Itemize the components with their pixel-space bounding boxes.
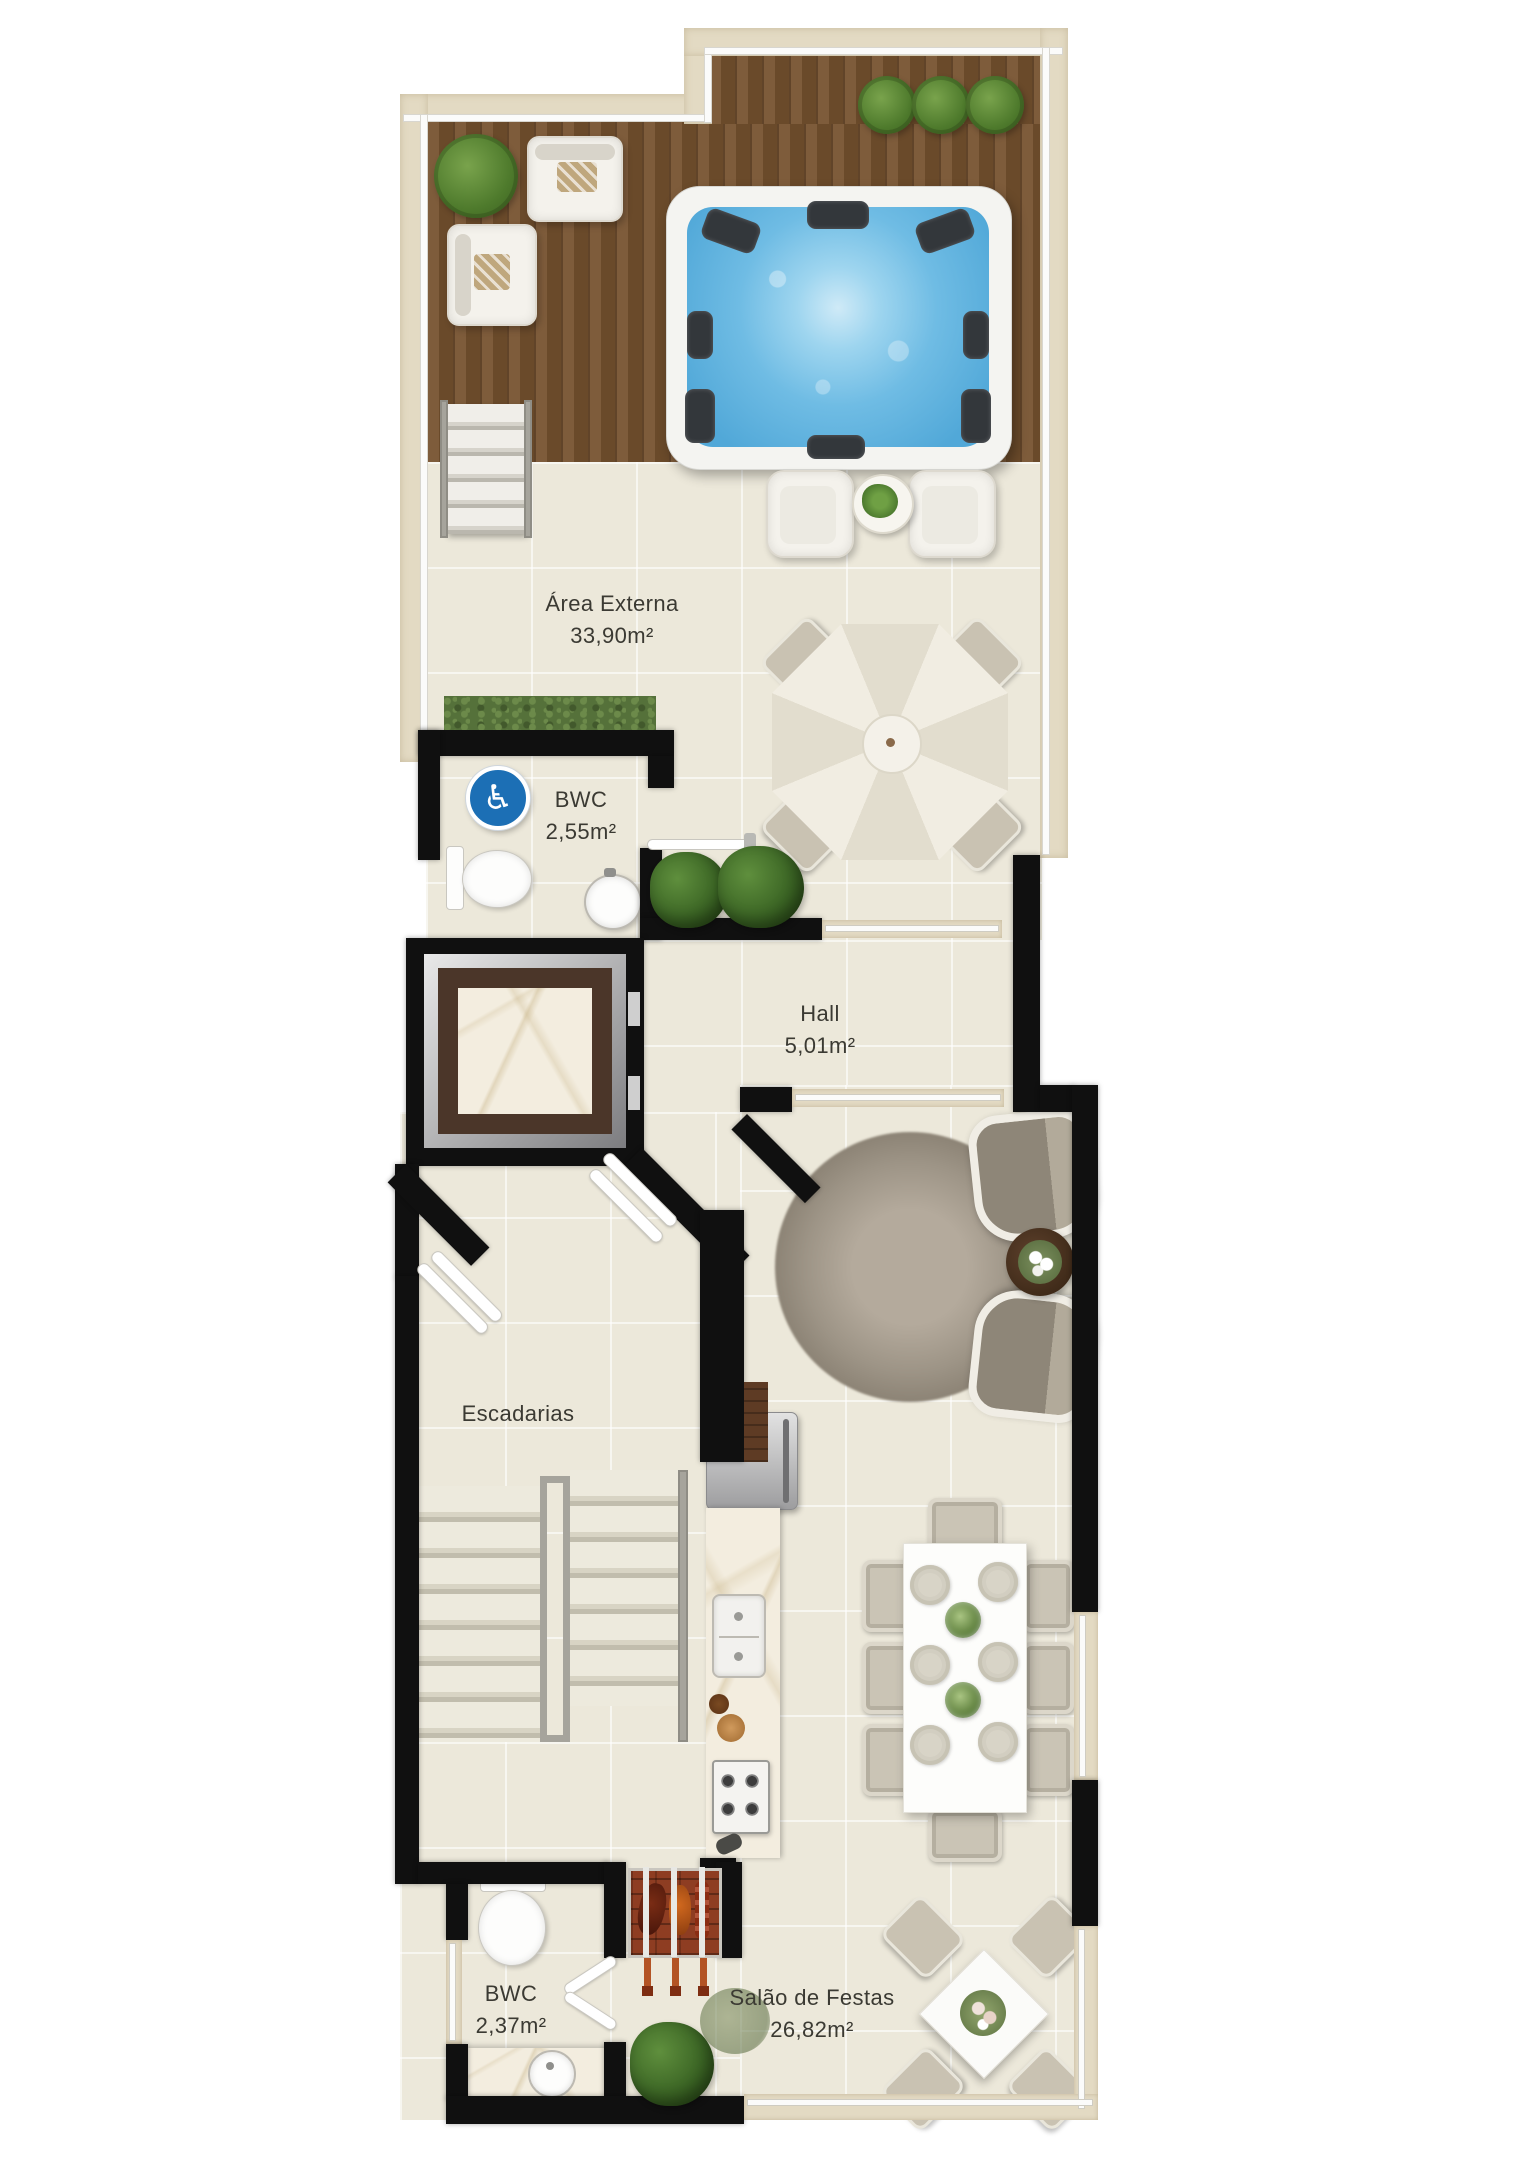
dinner-plate xyxy=(910,1645,950,1685)
room-name: BWC xyxy=(546,784,617,816)
kitchen-sink xyxy=(712,1594,766,1678)
chair-cushion xyxy=(922,486,978,544)
sink-faucet xyxy=(604,868,616,877)
glass-railing-line xyxy=(705,48,711,122)
window-glass xyxy=(1079,1930,1084,2108)
parasol-pole xyxy=(886,738,895,747)
potted-plant xyxy=(650,852,728,928)
dinner-plate xyxy=(978,1722,1018,1762)
boxwood-plant xyxy=(912,76,970,134)
room-label-hall: Hall 5,01m² xyxy=(785,998,856,1062)
boxwood-plant xyxy=(858,76,916,134)
interior-wall xyxy=(1013,855,1040,1112)
flower-arrangement xyxy=(1018,1240,1062,1284)
grill-bar xyxy=(699,1867,705,1957)
accessible-glyph: ♿ xyxy=(483,781,513,815)
sliding-door-glass xyxy=(826,926,998,931)
deck-steps xyxy=(446,404,526,534)
sink-divider xyxy=(719,1636,759,1638)
headrest xyxy=(961,389,991,443)
skewer-handle xyxy=(642,1986,653,1996)
headrest xyxy=(807,435,865,459)
lounge-bolster xyxy=(455,234,471,316)
burner xyxy=(719,1800,737,1818)
dinner-plate xyxy=(978,1642,1018,1682)
room-name: Área Externa xyxy=(545,588,678,620)
room-area: 2,37m² xyxy=(476,2010,547,2042)
patio-chair xyxy=(766,470,854,558)
potted-plant xyxy=(718,846,804,928)
boxwood-plant xyxy=(966,76,1024,134)
interior-wall xyxy=(604,2042,626,2104)
barbecue-grill xyxy=(628,1868,722,1958)
exterior-wall xyxy=(1072,1085,1098,1612)
headrest xyxy=(685,389,715,443)
room-area: 26,82m² xyxy=(730,2014,895,2046)
interior-wall xyxy=(1040,1085,1074,1112)
potted-plant xyxy=(630,2022,714,2106)
cooktop xyxy=(712,1760,770,1834)
lounge-pillow xyxy=(557,162,597,192)
dinner-plate xyxy=(910,1565,950,1605)
dinner-plate xyxy=(910,1725,950,1765)
lounge-bolster xyxy=(535,144,615,160)
window-frame xyxy=(744,2094,1098,2120)
hedge xyxy=(444,696,656,730)
interior-wall xyxy=(418,730,440,860)
interior-wall xyxy=(740,1087,792,1112)
cabinet xyxy=(744,1382,768,1462)
toilet-bowl xyxy=(478,1890,546,1966)
room-name: BWC xyxy=(476,1978,547,2010)
room-label-escadarias: Escadarias xyxy=(462,1398,575,1430)
dining-chair xyxy=(928,1808,1002,1862)
stair-rail xyxy=(678,1470,688,1742)
centerpiece xyxy=(945,1682,981,1718)
elevator-cabin-floor xyxy=(458,988,592,1114)
centerpiece xyxy=(945,1602,981,1638)
sink-drain xyxy=(546,2062,554,2070)
pedestal-sink xyxy=(584,874,642,930)
interior-wall xyxy=(700,1210,744,1462)
headrest xyxy=(963,311,989,359)
staircase-flight xyxy=(570,1470,678,1706)
stair-rail xyxy=(440,400,448,538)
room-area: 33,90m² xyxy=(545,620,678,652)
grill-bar xyxy=(643,1867,649,1957)
room-area: 5,01m² xyxy=(785,1030,856,1062)
room-label-area-externa: Área Externa 33,90m² xyxy=(545,588,678,652)
dinner-plate xyxy=(978,1562,1018,1602)
planter-plant xyxy=(434,134,518,218)
skewer xyxy=(672,1958,679,1988)
interior-wall xyxy=(446,1884,468,1940)
glass-railing-line xyxy=(705,48,1062,54)
elevator-door xyxy=(628,992,640,1026)
accessible-icon: ♿ xyxy=(466,766,530,830)
interior-wall xyxy=(418,730,674,756)
sink-drain xyxy=(734,1612,743,1621)
burner xyxy=(743,1800,761,1818)
stair-rail xyxy=(524,400,532,538)
window-glass xyxy=(450,1944,455,2040)
window-glass xyxy=(1080,1616,1085,1776)
sink-drain xyxy=(734,1652,743,1661)
room-name: Salão de Festas xyxy=(730,1982,895,2014)
floor-plan: ♿ xyxy=(0,0,1527,2160)
toilet-bowl xyxy=(462,850,532,908)
bread-basket xyxy=(717,1714,745,1742)
elevator-door xyxy=(628,1076,640,1110)
glass-railing-line xyxy=(404,115,706,121)
lounge-chair xyxy=(447,224,537,326)
table-plant xyxy=(862,484,898,518)
burner xyxy=(743,1772,761,1790)
bowl xyxy=(709,1694,729,1714)
window-frame xyxy=(1074,1926,1098,2116)
burner xyxy=(719,1772,737,1790)
elevator-shaft xyxy=(406,938,644,1166)
refrigerator-hinge xyxy=(783,1419,789,1503)
glass-railing-line xyxy=(421,115,427,760)
room-label-salao-de-festas: Salão de Festas 26,82m² xyxy=(730,1982,895,2046)
stair-center-rail xyxy=(540,1476,570,1742)
dining-chair xyxy=(1022,1724,1074,1796)
lounge-chair xyxy=(527,136,623,222)
patio-chair xyxy=(908,470,996,558)
grilled-meat xyxy=(634,1881,670,1937)
hot-tub xyxy=(666,186,1012,470)
interior-wall xyxy=(446,2044,468,2100)
dining-chair xyxy=(1022,1560,1074,1632)
room-name: Escadarias xyxy=(462,1398,575,1430)
sliding-door-glass xyxy=(796,1095,1000,1100)
room-label-bwc-superior: BWC 2,55m² xyxy=(546,784,617,848)
skewer xyxy=(644,1958,651,1988)
flower-centerpiece xyxy=(960,1990,1006,2036)
window-glass xyxy=(748,2100,1092,2105)
interior-wall xyxy=(648,756,674,788)
skewer-handle xyxy=(670,1986,681,1996)
interior-wall xyxy=(395,1276,419,1884)
room-label-bwc-inferior: BWC 2,37m² xyxy=(476,1978,547,2042)
grill-bar xyxy=(671,1867,677,1957)
skewer xyxy=(700,1958,707,1988)
room-area: 2,55m² xyxy=(546,816,617,848)
glass-railing-line xyxy=(1043,48,1049,854)
staircase-flight xyxy=(416,1486,544,1742)
room-name: Hall xyxy=(785,998,856,1030)
chair-cushion xyxy=(780,486,836,544)
interior-wall xyxy=(418,1862,608,1884)
vanity-sink xyxy=(528,2050,576,2098)
exterior-wall xyxy=(1072,1780,1098,1926)
headrest xyxy=(807,201,869,229)
interior-wall xyxy=(604,1862,626,1958)
window-frame xyxy=(1074,1612,1098,1780)
lounge-pillow xyxy=(474,254,510,290)
skewer-handle xyxy=(698,1986,709,1996)
headrest xyxy=(687,311,713,359)
towel-bar xyxy=(648,840,752,849)
interior-wall xyxy=(446,2096,744,2124)
dining-chair xyxy=(1022,1642,1074,1714)
